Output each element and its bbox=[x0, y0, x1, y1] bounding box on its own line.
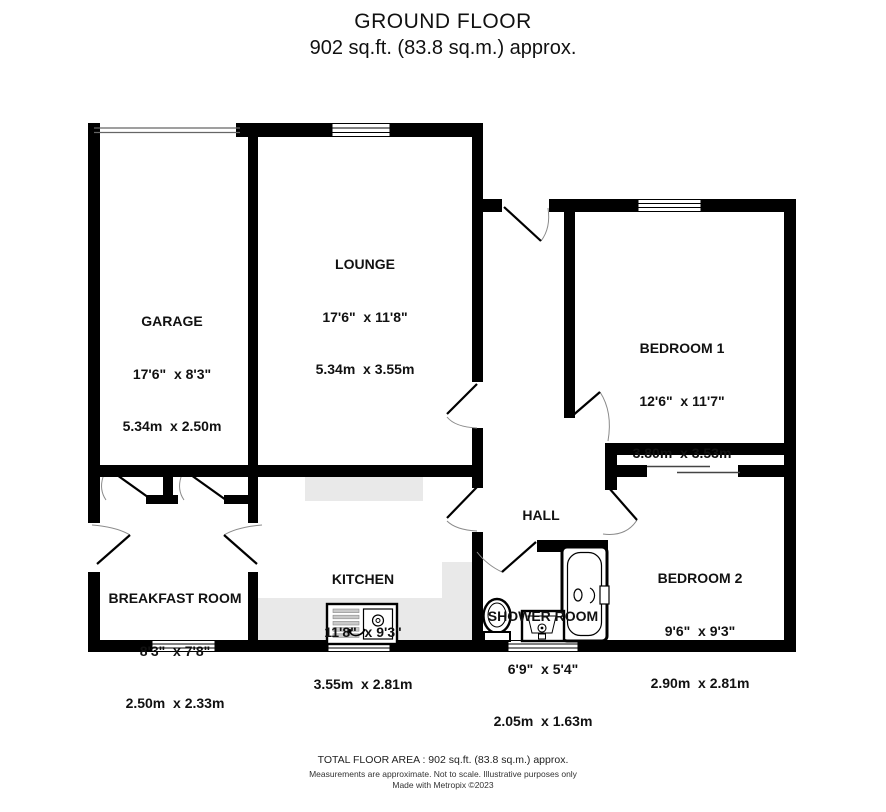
room-name: GARAGE bbox=[123, 313, 222, 331]
room-dim-imperial: 9'6" x 9'3" bbox=[651, 623, 750, 641]
room-dim-metric: 3.55m x 2.81m bbox=[314, 676, 413, 694]
room-dim-metric: 2.05m x 1.63m bbox=[488, 713, 598, 731]
room-name: SHOWER ROOM bbox=[488, 608, 598, 626]
room-dim-imperial: 17'6" x 8'3" bbox=[123, 366, 222, 384]
room-dim-imperial: 6'9" x 5'4" bbox=[488, 661, 598, 679]
room-label-lounge: LOUNGE 17'6" x 11'8" 5.34m x 3.55m bbox=[316, 221, 415, 396]
room-label-breakfast-room: BREAKFAST ROOM 8'3" x 7'8" 2.50m x 2.33m bbox=[109, 555, 242, 730]
room-dim-metric: 2.50m x 2.33m bbox=[109, 695, 242, 713]
room-label-bedroom-2: BEDROOM 2 9'6" x 9'3" 2.90m x 2.81m bbox=[651, 535, 750, 710]
room-label-shower-room: SHOWER ROOM 6'9" x 5'4" 2.05m x 1.63m bbox=[488, 573, 598, 748]
room-label-garage: GARAGE 17'6" x 8'3" 5.34m x 2.50m bbox=[123, 278, 222, 453]
room-name: BEDROOM 2 bbox=[651, 570, 750, 588]
credit: Made with Metropix ©2023 bbox=[0, 780, 886, 790]
plan-footer: TOTAL FLOOR AREA : 902 sq.ft. (83.8 sq.m… bbox=[0, 754, 886, 790]
garage-door bbox=[94, 128, 240, 133]
room-name: HALL bbox=[522, 507, 559, 525]
room-dim-imperial: 12'6" x 11'7" bbox=[633, 393, 732, 411]
room-name: BREAKFAST ROOM bbox=[109, 590, 242, 608]
room-name: KITCHEN bbox=[314, 571, 413, 589]
total-floor-area: TOTAL FLOOR AREA : 902 sq.ft. (83.8 sq.m… bbox=[0, 754, 886, 766]
room-name: BEDROOM 1 bbox=[633, 340, 732, 358]
room-dim-metric: 5.34m x 2.50m bbox=[123, 418, 222, 436]
disclaimer: Measurements are approximate. Not to sca… bbox=[0, 769, 886, 779]
room-dim-metric: 2.90m x 2.81m bbox=[651, 675, 750, 693]
room-dim-imperial: 8'3" x 7'8" bbox=[109, 643, 242, 661]
room-dim-metric: 3.80m x 3.53m bbox=[633, 445, 732, 463]
room-dim-imperial: 17'6" x 11'8" bbox=[316, 309, 415, 327]
room-dim-metric: 5.34m x 3.55m bbox=[316, 361, 415, 379]
room-dim-imperial: 11'8" x 9'3" bbox=[314, 624, 413, 642]
room-label-hall: HALL bbox=[522, 472, 559, 542]
room-name: LOUNGE bbox=[316, 256, 415, 274]
room-label-bedroom-1: BEDROOM 1 12'6" x 11'7" 3.80m x 3.53m bbox=[633, 305, 732, 480]
room-label-kitchen: KITCHEN 11'8" x 9'3" 3.55m x 2.81m bbox=[314, 536, 413, 711]
